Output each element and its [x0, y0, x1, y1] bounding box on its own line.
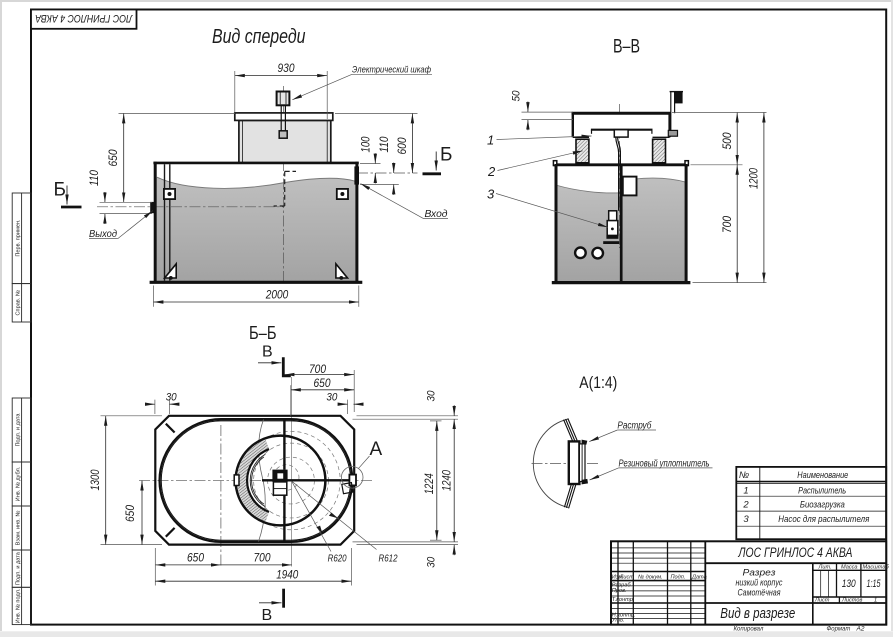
- svg-text:700: 700: [722, 215, 734, 233]
- svg-text:Б–Б: Б–Б: [249, 323, 277, 343]
- svg-text:Инв. № дубл.: Инв. № дубл.: [16, 466, 22, 501]
- svg-text:Формат: Формат: [827, 627, 851, 633]
- svg-text:650: 650: [314, 378, 332, 390]
- svg-text:1224: 1224: [424, 473, 436, 494]
- svg-text:№: №: [739, 470, 749, 481]
- svg-text:Пров.: Пров.: [612, 588, 627, 594]
- svg-text:Насос для распылителя: Насос для распылителя: [778, 514, 869, 525]
- svg-text:1: 1: [874, 598, 877, 604]
- svg-text:500: 500: [722, 132, 734, 150]
- svg-text:Вид в разрезе: Вид в разрезе: [720, 605, 795, 622]
- svg-text:Перв. примен.: Перв. примен.: [16, 219, 22, 257]
- svg-text:2: 2: [487, 164, 496, 179]
- svg-text:Самотёчная: Самотёчная: [738, 588, 781, 598]
- svg-text:1200: 1200: [748, 168, 760, 189]
- svg-text:Распылитель: Распылитель: [798, 485, 846, 496]
- svg-text:Лист: Лист: [619, 575, 635, 581]
- svg-text:30: 30: [326, 391, 338, 403]
- svg-text:1240: 1240: [442, 470, 454, 491]
- svg-text:Б: Б: [54, 179, 66, 200]
- svg-text:3: 3: [487, 187, 495, 202]
- svg-text:130: 130: [842, 578, 857, 590]
- svg-text:1300: 1300: [90, 469, 102, 490]
- svg-text:Листов: Листов: [841, 598, 862, 604]
- svg-text:1: 1: [743, 485, 748, 496]
- svg-text:R612: R612: [379, 553, 398, 565]
- svg-text:А: А: [370, 439, 383, 460]
- svg-text:Подп.: Подп.: [671, 575, 686, 581]
- svg-text:2: 2: [742, 500, 749, 511]
- svg-text:3: 3: [743, 514, 749, 525]
- svg-text:50: 50: [511, 90, 523, 102]
- svg-text:30: 30: [166, 391, 178, 403]
- svg-text:Справ. №: Справ. №: [16, 290, 22, 315]
- svg-text:Б: Б: [440, 144, 452, 165]
- svg-text:650: 650: [187, 553, 205, 565]
- svg-text:110: 110: [379, 136, 391, 153]
- svg-text:Подп. и дата: Подп. и дата: [16, 551, 22, 585]
- svg-text:Вид спереди: Вид спереди: [212, 26, 306, 48]
- svg-text:Наименование: Наименование: [797, 470, 848, 481]
- svg-text:В: В: [262, 344, 273, 361]
- svg-text:700: 700: [254, 553, 272, 565]
- svg-text:Разрез: Разрез: [743, 568, 776, 578]
- svg-text:ЛОС ГРИНЛОС 4 АКВА: ЛОС ГРИНЛОС 4 АКВА: [35, 12, 133, 24]
- svg-text:650: 650: [125, 504, 137, 522]
- svg-text:R620: R620: [328, 553, 347, 565]
- svg-text:Подп. и дата: Подп. и дата: [16, 413, 22, 447]
- svg-text:Инв. № подл.: Инв. № подл.: [16, 588, 22, 623]
- svg-text:Раструб: Раструб: [617, 419, 651, 431]
- svg-text:100: 100: [360, 136, 372, 153]
- svg-text:Лист: Лист: [814, 598, 830, 604]
- svg-text:1:15: 1:15: [867, 578, 882, 590]
- svg-text:Масса: Масса: [841, 565, 858, 571]
- svg-text:В–В: В–В: [613, 37, 640, 58]
- svg-text:1940: 1940: [276, 569, 299, 581]
- svg-text:В: В: [262, 607, 273, 624]
- svg-text:Копировал: Копировал: [734, 627, 764, 633]
- svg-text:Утв.: Утв.: [611, 618, 625, 624]
- svg-text:2000: 2000: [265, 290, 289, 302]
- svg-text:Дата: Дата: [691, 575, 707, 581]
- svg-text:1: 1: [487, 133, 494, 148]
- svg-text:Масштаб: Масштаб: [863, 565, 890, 571]
- svg-text:30: 30: [426, 390, 438, 402]
- svg-text:Биозагрузка: Биозагрузка: [800, 500, 845, 511]
- svg-text:Электрический шкаф: Электрический шкаф: [352, 64, 431, 75]
- svg-text:Лит.: Лит.: [818, 565, 832, 571]
- svg-text:А2: А2: [856, 626, 865, 633]
- svg-text:30: 30: [426, 556, 438, 568]
- svg-text:А(1:4): А(1:4): [579, 373, 617, 392]
- svg-text:№ докум.: № докум.: [638, 575, 663, 581]
- svg-text:700: 700: [309, 364, 327, 376]
- svg-text:930: 930: [278, 63, 296, 75]
- svg-text:ЛОС ГРИНЛОС 4 АКВА: ЛОС ГРИНЛОС 4 АКВА: [738, 545, 853, 560]
- svg-text:низкий корпус: низкий корпус: [736, 578, 783, 588]
- svg-text:Взам. инв. №: Взам. инв. №: [16, 511, 22, 546]
- svg-text:110: 110: [89, 169, 101, 186]
- svg-text:650: 650: [108, 149, 120, 167]
- svg-text:600: 600: [397, 137, 409, 155]
- svg-text:Т.контр.: Т.контр.: [612, 597, 635, 603]
